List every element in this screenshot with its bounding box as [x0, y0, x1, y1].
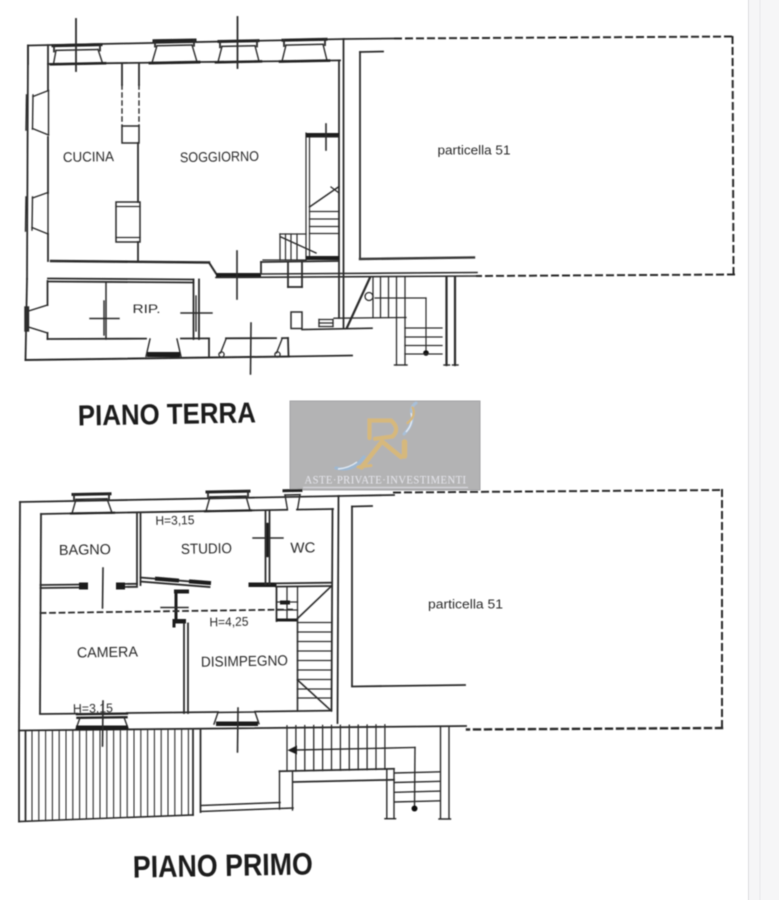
svg-text:SOGGIORNO: SOGGIORNO [180, 148, 259, 165]
svg-text:H=3,15: H=3,15 [155, 513, 194, 528]
svg-text:RIP.: RIP. [133, 302, 161, 316]
svg-text:H=4,25: H=4,25 [209, 615, 248, 630]
svg-text:particella 51: particella 51 [428, 597, 503, 612]
svg-text:STUDIO: STUDIO [181, 541, 232, 558]
svg-text:CUCINA: CUCINA [63, 148, 115, 165]
svg-text:DISIMPEGNO: DISIMPEGNO [201, 653, 288, 671]
svg-text:WC: WC [290, 540, 315, 556]
svg-text:particella 51: particella 51 [438, 143, 511, 158]
svg-text:PIANO PRIMO: PIANO PRIMO [133, 846, 314, 884]
svg-text:H=3,15: H=3,15 [73, 701, 113, 716]
svg-text:BAGNO: BAGNO [59, 542, 111, 559]
svg-text:PIANO TERRA: PIANO TERRA [78, 397, 257, 432]
svg-text:ASTE·PRIVATE·INVESTIMENTI: ASTE·PRIVATE·INVESTIMENTI [305, 473, 467, 487]
svg-text:CAMERA: CAMERA [77, 644, 139, 661]
